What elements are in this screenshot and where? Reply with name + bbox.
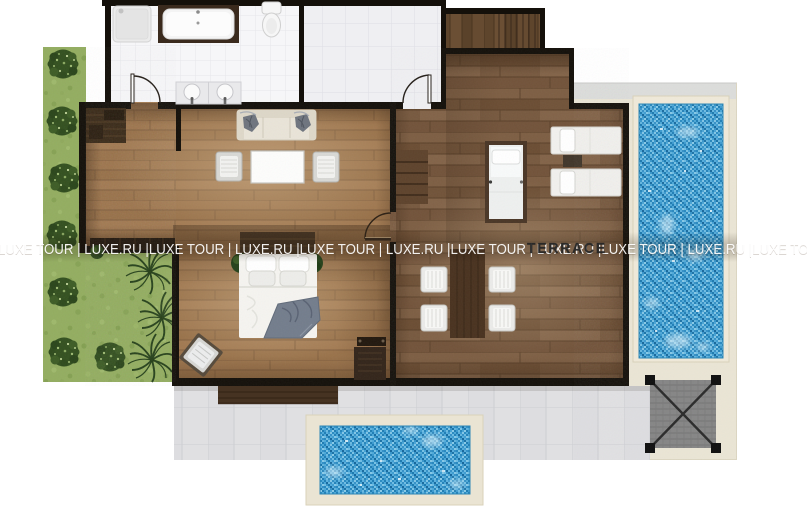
svg-text:LUXE TOUR | LUXE.RU |LUXE TOUR: LUXE TOUR | LUXE.RU |LUXE TOUR | LUXE.RU…	[0, 241, 807, 258]
svg-text:TERRACE: TERRACE	[527, 240, 607, 257]
